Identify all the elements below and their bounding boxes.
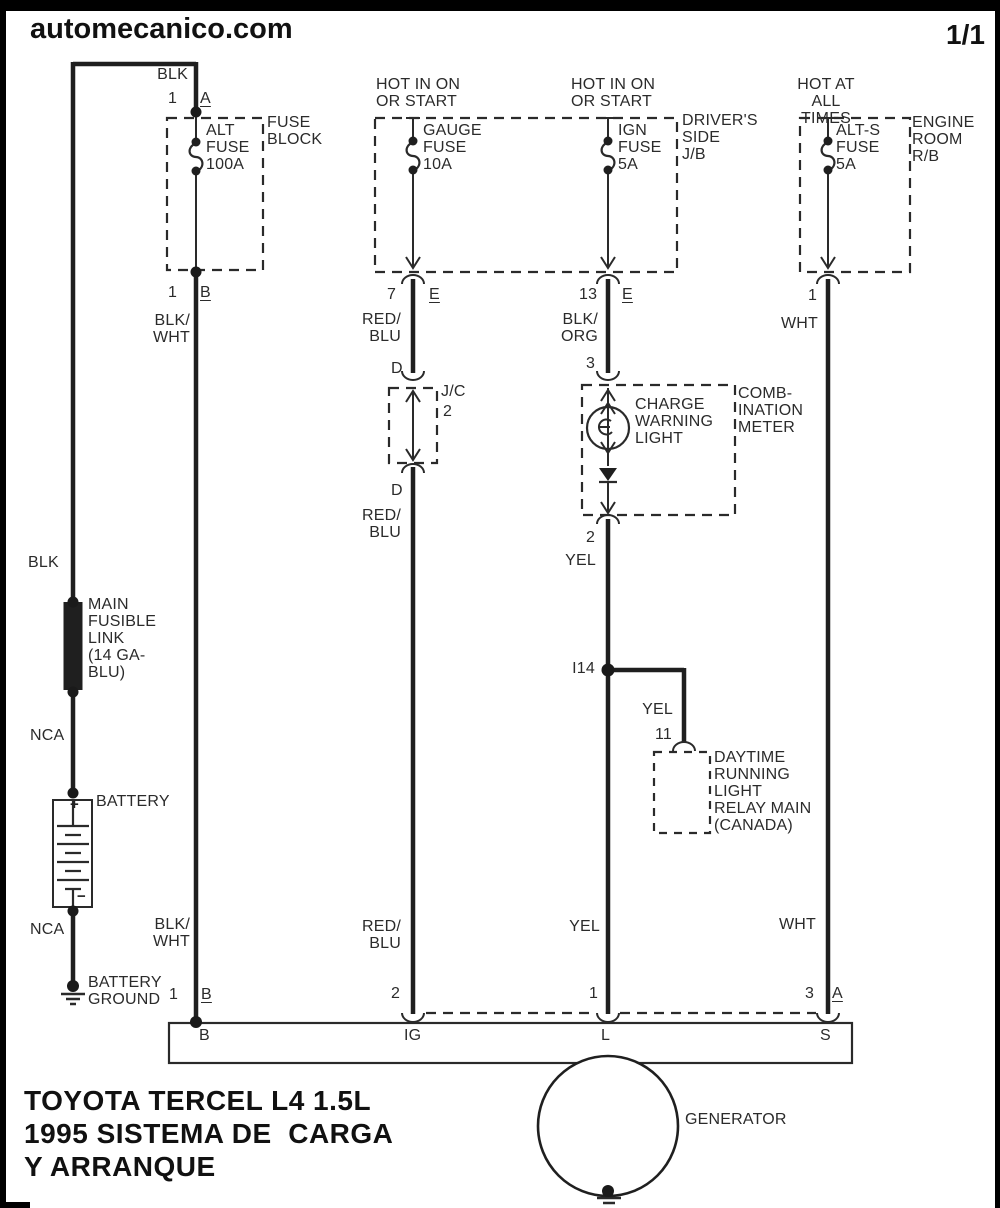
pin-number: 7 <box>387 286 396 303</box>
pin-letter: E <box>429 286 440 303</box>
battery-ground-icon <box>61 994 85 1004</box>
pin-letter: D <box>391 360 403 377</box>
drivers-side-jb-label: DRIVER'S SIDE J/B <box>682 112 758 163</box>
pin-number: 1 <box>808 287 817 304</box>
main-wires <box>73 62 828 1022</box>
pin-number: 3 <box>805 985 814 1002</box>
power-source-label: HOT IN ON OR START <box>571 76 655 110</box>
pin-letter: B <box>200 284 211 301</box>
alt-fuse-label: ALT FUSE 100A <box>206 122 249 173</box>
pin-letter: A <box>832 985 843 1002</box>
main-fusible-link-symbol <box>64 602 83 690</box>
dashed-boxes <box>167 118 910 1013</box>
pin-number: 2 <box>391 985 400 1002</box>
alt-s-fuse-label: ALT-S FUSE 5A <box>836 122 880 173</box>
junction-label-i14: I14 <box>551 660 595 677</box>
generator-terminal-s: S <box>820 1027 831 1044</box>
gauge-fuse-symbol <box>407 137 420 175</box>
battery-label: BATTERY <box>96 793 170 810</box>
wire-label-wht-lower: WHT <box>760 916 816 933</box>
engine-room-rb-label: ENGINE ROOM R/B <box>912 114 975 165</box>
diagram-title-line: Y ARRANQUE <box>24 1150 216 1183</box>
drl-relay-label: DAYTIME RUNNING LIGHT RELAY MAIN (CANADA… <box>714 749 811 834</box>
generator-connector-block <box>169 1023 852 1063</box>
wire-label-blk-top: BLK <box>128 66 188 83</box>
jc-label: J/C <box>441 383 466 400</box>
battery-ground-label: BATTERY GROUND <box>88 974 162 1008</box>
wire-label-blk: BLK <box>28 554 59 571</box>
wire-label-yel-branch: YEL <box>617 701 673 718</box>
wiring-diagram-page: automecanico.com 1/1 .big{position:absol… <box>0 0 1000 1208</box>
wire-label-blk-org: BLK/ ORG <box>542 311 598 345</box>
fuse-block-label: FUSE BLOCK <box>267 114 322 148</box>
pin-number: 13 <box>579 286 597 303</box>
wire-label-wht: WHT <box>762 315 818 332</box>
pin-letter: B <box>201 986 212 1003</box>
wire-label-blk-wht: BLK/ WHT <box>128 312 190 346</box>
generator-ground-icon <box>597 1198 621 1203</box>
battery-plus-sign: + <box>70 796 79 813</box>
ign-fuse-symbol <box>602 137 615 175</box>
generator-terminal-ig: IG <box>404 1027 421 1044</box>
gauge-fuse-label: GAUGE FUSE 10A <box>423 122 482 173</box>
generator-terminal-b: B <box>199 1027 210 1044</box>
wire-label-nca-upper: NCA <box>30 727 64 744</box>
alt-fuse-symbol <box>190 138 203 176</box>
pin-number: 1 <box>169 986 178 1003</box>
page-number: 1/1 <box>946 20 985 50</box>
wire-label-red-blu: RED/ BLU <box>345 311 401 345</box>
wire-label-yel-lower: YEL <box>544 918 600 935</box>
pin-number: 3 <box>586 355 595 372</box>
charge-warning-light-label: CHARGE WARNING LIGHT <box>635 396 713 447</box>
thin-wires <box>196 112 835 513</box>
diode-icon <box>599 468 617 481</box>
pin-letter: E <box>622 286 633 303</box>
pin-number: 1 <box>589 985 598 1002</box>
jc-number: 2 <box>443 403 452 420</box>
pin-number: 11 <box>638 726 672 743</box>
drl-relay-box <box>654 752 710 833</box>
main-fusible-link-label: MAIN FUSIBLE LINK (14 GA- BLU) <box>88 596 156 681</box>
power-source-label: HOT AT ALL TIMES <box>786 76 866 127</box>
ign-fuse-label: IGN FUSE 5A <box>618 122 661 173</box>
wire-label-blk-wht-lower: BLK/ WHT <box>128 916 190 950</box>
diagram-title-line: 1995 SISTEMA DE CARGA <box>24 1117 393 1150</box>
wire-label-red-blu-lower: RED/ BLU <box>345 918 401 952</box>
pin-letter: A <box>200 90 211 107</box>
pin-number: 2 <box>586 529 595 546</box>
generator-terminal-l: L <box>601 1027 610 1044</box>
pin-number: 1 <box>168 284 177 301</box>
diagram-title-line: TOYOTA TERCEL L4 1.5L <box>24 1084 371 1117</box>
alt-s-fuse-symbol <box>822 137 835 175</box>
pin-letter: D <box>391 482 403 499</box>
generator-body <box>538 1056 678 1196</box>
battery-minus-sign: − <box>77 888 86 905</box>
wire-label-yel: YEL <box>540 552 596 569</box>
battery-symbol <box>53 800 92 907</box>
generator-label: GENERATOR <box>685 1111 787 1128</box>
power-source-label: HOT IN ON OR START <box>376 76 460 110</box>
pin-number: 1 <box>168 90 177 107</box>
combination-meter-label: COMB- INATION METER <box>738 385 803 436</box>
wire-label-red-blu-2: RED/ BLU <box>345 507 401 541</box>
wire-label-nca-lower: NCA <box>30 921 64 938</box>
site-title: automecanico.com <box>30 14 293 44</box>
